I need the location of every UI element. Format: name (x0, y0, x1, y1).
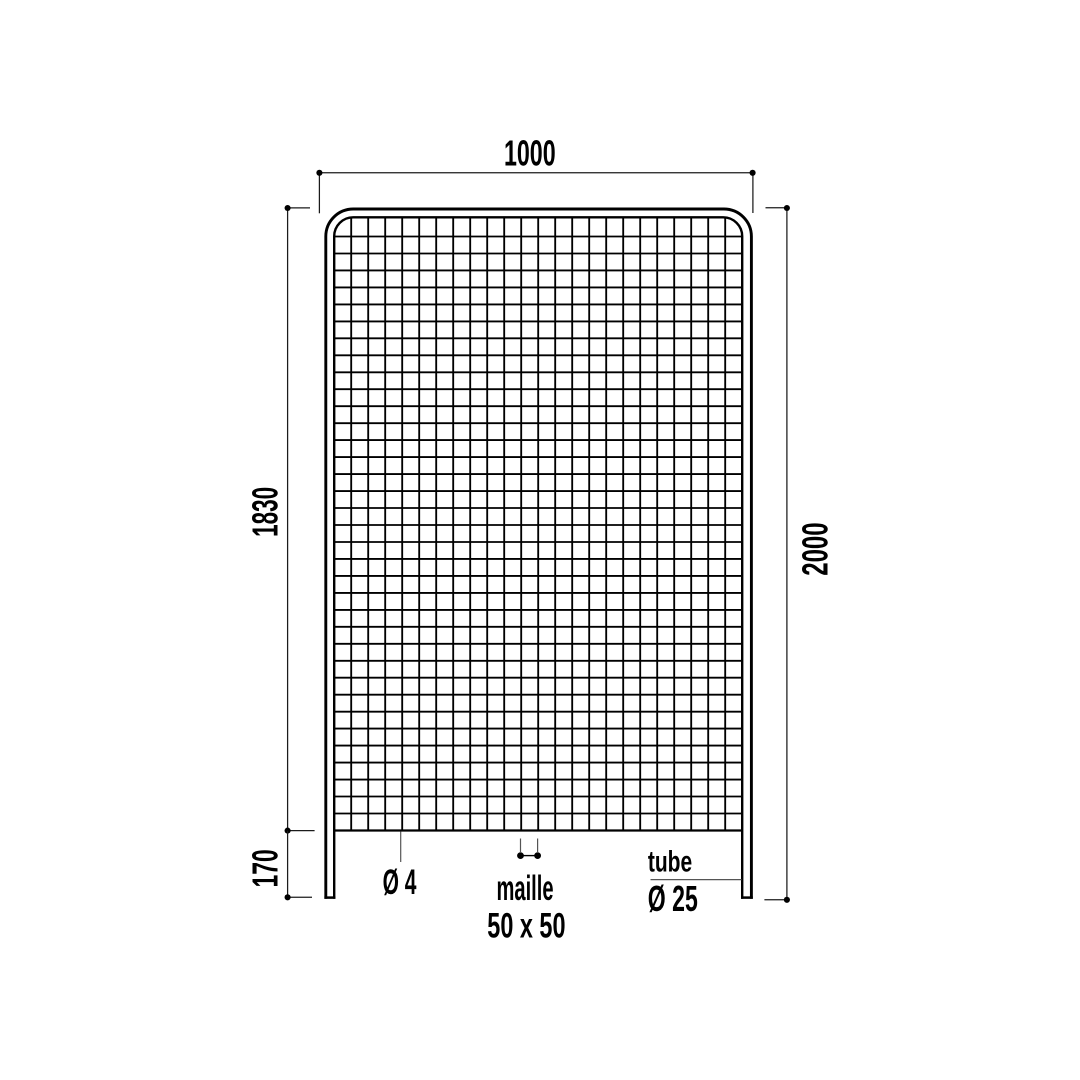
svg-text:2000: 2000 (794, 522, 835, 575)
svg-text:Ø 4: Ø 4 (383, 864, 417, 903)
svg-text:Ø 25: Ø 25 (648, 879, 698, 920)
svg-text:170: 170 (245, 849, 286, 887)
svg-text:tube: tube (648, 846, 692, 878)
svg-text:1000: 1000 (504, 133, 556, 174)
svg-text:50 x 50: 50 x 50 (487, 907, 565, 946)
svg-text:1830: 1830 (246, 487, 286, 537)
svg-text:maille: maille (496, 869, 553, 908)
